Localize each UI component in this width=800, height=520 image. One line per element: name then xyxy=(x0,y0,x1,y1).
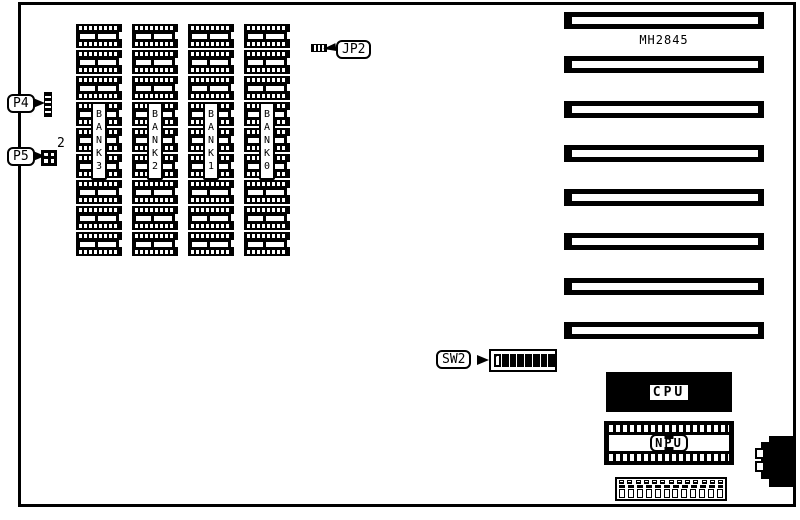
expansion-slot xyxy=(564,189,764,206)
connector-pin xyxy=(669,480,674,484)
chip-body-bar xyxy=(154,60,172,65)
chip-pins-top xyxy=(247,182,287,186)
jp2-label: JP2 xyxy=(336,40,371,59)
chip-pins-bottom xyxy=(191,250,231,254)
chip-pins-bottom xyxy=(247,198,287,202)
memory-bank-column: BANK1 xyxy=(188,24,234,256)
bottom-connector-bottom-pin-row xyxy=(619,489,723,498)
bottom-pin-connector xyxy=(615,477,727,501)
chip-body-bar xyxy=(136,60,151,65)
chip-pins-top xyxy=(135,52,175,56)
p4-pointer-icon xyxy=(33,98,45,108)
chip-notch xyxy=(231,214,234,221)
bottom-connector-dash-row xyxy=(619,485,723,488)
chip-pins-bottom xyxy=(135,42,175,46)
memory-chip xyxy=(132,232,178,256)
chip-notch xyxy=(119,188,122,195)
p5-pointer-icon xyxy=(33,151,45,161)
chip-body-bar xyxy=(154,34,172,39)
chip-notch xyxy=(119,240,122,247)
chip-body-bar xyxy=(266,86,284,91)
chip-notch xyxy=(231,32,234,39)
chip-notch xyxy=(231,136,234,143)
expansion-slot-opening xyxy=(572,106,758,113)
connector-pin xyxy=(628,489,634,498)
connector-pin xyxy=(702,480,707,484)
chip-pins-bottom xyxy=(135,68,175,72)
motherboard-diagram: BANK3BANK2BANK1BANK0 P4 P5 2 JP2 MH2845 … xyxy=(0,0,800,520)
chip-notch xyxy=(119,32,122,39)
connector-pin xyxy=(681,489,687,498)
memory-chip xyxy=(132,76,178,100)
chip-notch xyxy=(287,240,290,247)
chip-pins-top xyxy=(191,182,231,186)
p5-pin-count: 2 xyxy=(57,136,65,151)
chip-notch xyxy=(119,162,122,169)
chip-body-bar xyxy=(192,60,207,65)
chip-notch xyxy=(231,110,234,117)
chip-pins-bottom xyxy=(191,68,231,72)
chip-body-bar xyxy=(210,242,228,247)
keyboard-din-pin xyxy=(755,448,765,459)
chip-notch xyxy=(287,188,290,195)
memory-chip xyxy=(76,76,122,100)
keyboard-din-pin xyxy=(755,461,765,472)
connector-pin xyxy=(690,489,696,498)
npu-socket-pins-bottom xyxy=(609,454,729,461)
chip-body-bar xyxy=(98,60,116,65)
sw2-dip-switch xyxy=(489,349,557,372)
dip-switch-cell xyxy=(502,354,509,367)
expansion-slot-opening xyxy=(572,327,758,334)
chip-pins-bottom xyxy=(79,68,119,72)
chip-pins-top xyxy=(79,182,119,186)
chip-notch xyxy=(175,240,178,247)
chip-body-bar xyxy=(80,216,95,221)
connector-pin xyxy=(664,489,670,498)
chip-body-bar xyxy=(248,34,263,39)
cpu-label: CPU xyxy=(650,385,688,400)
memory-chip xyxy=(188,206,234,230)
expansion-slot xyxy=(564,101,764,118)
chip-notch xyxy=(175,32,178,39)
chip-notch xyxy=(287,136,290,143)
chip-body-bar xyxy=(80,86,95,91)
chip-body-bar xyxy=(266,60,284,65)
npu-socket-pins-top xyxy=(609,425,729,432)
connector-pin xyxy=(699,489,705,498)
memory-chip xyxy=(188,232,234,256)
memory-chip xyxy=(188,180,234,204)
chip-notch xyxy=(119,214,122,221)
chip-pins-bottom xyxy=(191,94,231,98)
chip-pins-bottom xyxy=(79,250,119,254)
chip-pins-bottom xyxy=(79,42,119,46)
connector-pin xyxy=(685,480,690,484)
bank-label: BANK3 xyxy=(91,102,107,180)
dip-switch-cell xyxy=(525,354,532,367)
chip-pins-bottom xyxy=(247,42,287,46)
expansion-slot-opening xyxy=(572,283,758,290)
chip-body-bar xyxy=(266,190,284,195)
memory-chip xyxy=(76,206,122,230)
p4-connector xyxy=(44,92,52,117)
npu-socket-tab xyxy=(665,435,674,439)
npu-socket-body: NPU xyxy=(609,435,729,451)
connector-pin xyxy=(619,480,624,484)
memory-banks: BANK3BANK2BANK1BANK0 xyxy=(76,24,290,256)
chip-pins-top xyxy=(191,234,231,238)
chip-body-bar xyxy=(210,60,228,65)
chip-body-bar xyxy=(248,60,263,65)
connector-pin xyxy=(655,489,661,498)
chip-body-bar xyxy=(210,216,228,221)
chip-notch xyxy=(231,162,234,169)
memory-chip xyxy=(132,24,178,48)
chip-pins-top xyxy=(79,208,119,212)
chip-notch xyxy=(287,110,290,117)
memory-chip xyxy=(76,24,122,48)
keyboard-din-connector-tab xyxy=(769,478,796,487)
chip-pins-top xyxy=(135,78,175,82)
dip-switch-cell xyxy=(533,354,540,367)
chip-body-bar xyxy=(136,190,151,195)
chip-pins-bottom xyxy=(191,224,231,228)
chip-body-bar xyxy=(248,216,263,221)
chip-pins-top xyxy=(135,234,175,238)
chip-body-bar xyxy=(154,216,172,221)
chip-pins-bottom xyxy=(135,250,175,254)
chip-body-bar xyxy=(80,60,95,65)
chip-notch xyxy=(287,32,290,39)
expansion-slot xyxy=(564,56,764,73)
chip-notch xyxy=(175,188,178,195)
sw2-label: SW2 xyxy=(436,350,471,369)
connector-pin xyxy=(672,489,678,498)
chip-notch xyxy=(287,214,290,221)
connector-pin xyxy=(718,480,723,484)
connector-pin xyxy=(637,489,643,498)
expansion-slot xyxy=(564,278,764,295)
chip-notch xyxy=(231,84,234,91)
memory-chip xyxy=(188,50,234,74)
chip-pins-bottom xyxy=(191,42,231,46)
memory-chip xyxy=(244,24,290,48)
chip-body-bar xyxy=(210,86,228,91)
memory-chip xyxy=(244,206,290,230)
chip-pins-top xyxy=(79,26,119,30)
chip-body-bar xyxy=(266,242,284,247)
chip-body-bar xyxy=(210,190,228,195)
chip-body-bar xyxy=(266,34,284,39)
memory-bank-column: BANK2 xyxy=(132,24,178,256)
chip-pins-top xyxy=(79,234,119,238)
chip-body-bar xyxy=(154,242,172,247)
chip-body-bar xyxy=(192,86,207,91)
chip-pins-bottom xyxy=(79,224,119,228)
bank-label: BANK2 xyxy=(147,102,163,180)
dip-switch-cell xyxy=(541,354,548,367)
chip-notch xyxy=(175,84,178,91)
chip-pins-bottom xyxy=(247,250,287,254)
bank-label: BANK1 xyxy=(203,102,219,180)
connector-pin xyxy=(636,480,641,484)
chip-pins-top xyxy=(79,52,119,56)
connector-pin xyxy=(710,480,715,484)
connector-pin xyxy=(619,489,625,498)
p5-connector-divider xyxy=(44,156,54,159)
keyboard-din-connector xyxy=(761,442,796,479)
chip-pins-top xyxy=(79,78,119,82)
memory-chip xyxy=(188,76,234,100)
chip-body-bar xyxy=(192,216,207,221)
chip-body-bar xyxy=(136,86,151,91)
chip-body-bar xyxy=(80,190,95,195)
dip-switch-cell xyxy=(517,354,524,367)
chip-body-bar xyxy=(80,242,95,247)
chip-body-bar xyxy=(136,216,151,221)
chip-pins-bottom xyxy=(191,198,231,202)
bank-label: BANK0 xyxy=(259,102,275,180)
memory-bank-column: BANK0 xyxy=(244,24,290,256)
chip-pins-bottom xyxy=(247,94,287,98)
board-model-text: MH2845 xyxy=(564,33,764,47)
chip-body-bar xyxy=(154,190,172,195)
chip-body-bar xyxy=(210,34,228,39)
chip-notch xyxy=(231,188,234,195)
dip-switch-cell xyxy=(494,354,501,367)
chip-body-bar xyxy=(266,216,284,221)
chip-body-bar xyxy=(192,34,207,39)
connector-pin xyxy=(717,489,723,498)
expansion-slot xyxy=(564,322,764,339)
cpu-chip: CPU xyxy=(606,372,732,412)
chip-pins-bottom xyxy=(135,224,175,228)
chip-body-bar xyxy=(98,242,116,247)
bottom-connector-top-pin-row xyxy=(619,480,723,484)
chip-notch xyxy=(119,58,122,65)
memory-chip xyxy=(244,76,290,100)
connector-pin xyxy=(627,480,632,484)
chip-pins-bottom xyxy=(135,198,175,202)
memory-chip xyxy=(244,232,290,256)
memory-chip xyxy=(244,50,290,74)
chip-pins-top xyxy=(191,26,231,30)
expansion-slot xyxy=(564,12,764,29)
memory-bank-column: BANK3 xyxy=(76,24,122,256)
chip-notch xyxy=(231,58,234,65)
dip-switch-cell xyxy=(548,354,555,367)
chip-pins-bottom xyxy=(247,68,287,72)
npu-socket-tab xyxy=(665,447,674,451)
chip-pins-top xyxy=(247,234,287,238)
chip-pins-top xyxy=(191,52,231,56)
expansion-slot-opening xyxy=(572,238,758,245)
chip-pins-bottom xyxy=(247,224,287,228)
expansion-slots xyxy=(564,12,764,339)
keyboard-din-connector-tab xyxy=(769,436,796,443)
chip-body-bar xyxy=(248,86,263,91)
chip-notch xyxy=(287,58,290,65)
npu-socket: NPU xyxy=(604,421,734,465)
chip-body-bar xyxy=(136,34,151,39)
chip-pins-top xyxy=(247,208,287,212)
chip-notch xyxy=(119,84,122,91)
expansion-slot xyxy=(564,145,764,162)
connector-pin xyxy=(646,489,652,498)
memory-chip xyxy=(76,50,122,74)
chip-pins-top xyxy=(135,26,175,30)
chip-body-bar xyxy=(248,190,263,195)
sw2-pointer-icon xyxy=(477,355,489,365)
chip-body-bar xyxy=(192,242,207,247)
chip-body-bar xyxy=(98,216,116,221)
dip-switch-cell xyxy=(510,354,517,367)
chip-pins-top xyxy=(191,78,231,82)
memory-chip xyxy=(76,180,122,204)
memory-chip xyxy=(244,180,290,204)
chip-body-bar xyxy=(136,242,151,247)
chip-pins-bottom xyxy=(79,198,119,202)
expansion-slot-opening xyxy=(572,150,758,157)
connector-pin xyxy=(660,480,665,484)
memory-chip xyxy=(76,232,122,256)
p4-label: P4 xyxy=(7,94,35,113)
expansion-slot-opening xyxy=(572,194,758,201)
chip-body-bar xyxy=(154,86,172,91)
chip-body-bar xyxy=(98,34,116,39)
chip-notch xyxy=(175,214,178,221)
chip-notch xyxy=(287,84,290,91)
chip-notch xyxy=(175,58,178,65)
chip-notch xyxy=(119,136,122,143)
chip-notch xyxy=(175,136,178,143)
chip-body-bar xyxy=(80,34,95,39)
chip-pins-top xyxy=(191,208,231,212)
chip-pins-top xyxy=(247,78,287,82)
chip-body-bar xyxy=(98,190,116,195)
expansion-slot-opening xyxy=(572,17,758,24)
chip-notch xyxy=(231,240,234,247)
expansion-slot-opening xyxy=(572,61,758,68)
chip-notch xyxy=(175,162,178,169)
p5-label: P5 xyxy=(7,147,35,166)
chip-notch xyxy=(119,110,122,117)
chip-pins-bottom xyxy=(135,94,175,98)
memory-chip xyxy=(188,24,234,48)
chip-pins-bottom xyxy=(79,94,119,98)
connector-pin xyxy=(708,489,714,498)
connector-pin xyxy=(693,480,698,484)
chip-pins-top xyxy=(135,208,175,212)
chip-body-bar xyxy=(192,190,207,195)
memory-chip xyxy=(132,206,178,230)
memory-chip xyxy=(132,180,178,204)
connector-pin xyxy=(644,480,649,484)
chip-body-bar xyxy=(248,242,263,247)
memory-chip xyxy=(132,50,178,74)
chip-notch xyxy=(287,162,290,169)
expansion-slot xyxy=(564,233,764,250)
chip-notch xyxy=(175,110,178,117)
connector-pin xyxy=(652,480,657,484)
chip-pins-top xyxy=(135,182,175,186)
chip-pins-top xyxy=(247,26,287,30)
connector-pin xyxy=(677,480,682,484)
chip-body-bar xyxy=(98,86,116,91)
chip-pins-top xyxy=(247,52,287,56)
